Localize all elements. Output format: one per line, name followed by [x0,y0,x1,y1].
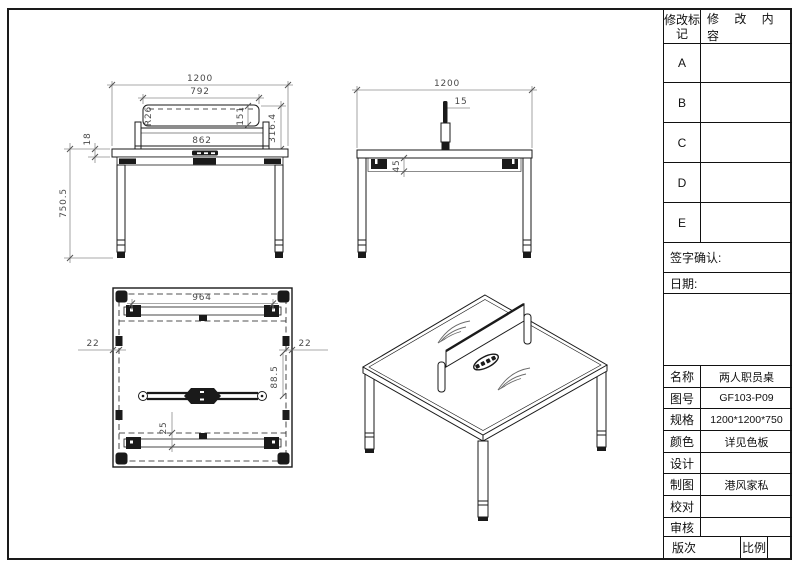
revision-content-e [701,203,792,242]
plan-leg-bl [116,453,128,465]
side-apron [368,158,521,172]
dim-front-screen-width: 792 [138,87,264,104]
revision-mark-e: E [664,203,701,242]
side-leg-left [358,158,366,258]
color-value: 详见色板 [701,431,792,452]
revision-mark-a: A [664,44,701,82]
revision-row-d: D [664,163,792,203]
svg-text:25: 25 [159,421,169,434]
revision-row-a: A [664,44,792,83]
iso-leg-front [478,441,488,521]
field-row-drawing-no: 图号 GF103-P09 [664,388,792,409]
dim-front-top-thickness: 18 [83,132,110,163]
notes-area [664,294,792,366]
drafting-label: 制图 [664,474,701,495]
svg-text:15: 15 [454,97,467,107]
svg-text:964: 964 [192,293,212,303]
color-label: 颜色 [664,431,701,452]
revision-content-b [701,83,792,122]
date-label: 日期: [670,275,697,292]
revision-mark-header: 修改标记 [664,10,701,43]
revision-content-header: 修 改 内 容 [701,10,792,43]
version-scale-row: 版次 比例 [664,537,792,558]
isometric-view [363,295,607,521]
revision-mark-b: B [664,83,701,122]
scale-value [768,537,792,558]
title-block: 修改标记 修 改 内 容 A B C D E 签字确认: 日期: [663,10,792,558]
svg-text:792: 792 [190,87,210,97]
field-row-name: 名称 两人职员桌 [664,366,792,388]
name-label: 名称 [664,366,701,387]
revision-content-a [701,44,792,82]
revision-row-e: E [664,203,792,243]
svg-text:750.5: 750.5 [59,188,69,218]
revision-header-row: 修改标记 修 改 内 容 [664,10,792,44]
side-tabletop [357,150,532,158]
scale-label: 比例 [740,537,768,558]
drawing-no-label: 图号 [664,388,701,408]
front-apron [117,157,283,165]
drawing-no-value: GF103-P09 [701,388,792,408]
svg-text:88.5: 88.5 [270,365,280,388]
revision-content-c [701,123,792,162]
plan-leg-tl [116,291,128,303]
field-row-review: 审核 [664,518,792,537]
dim-front-desk-height: 750.5 [59,143,113,263]
front-tabletop [112,149,288,157]
svg-text:862: 862 [192,136,212,146]
revision-mark-d: D [664,163,701,202]
field-row-spec: 规格 1200*1200*750 [664,409,792,431]
svg-text:45: 45 [392,159,402,172]
side-screen-edge: 15 [441,97,470,150]
iso-leg-left [365,373,374,453]
spec-value: 1200*1200*750 [701,409,792,430]
revision-row-b: B [664,83,792,123]
review-value [701,518,792,536]
front-view: 1200 792 R26 151 [59,74,293,263]
side-view: 1200 15 45 [352,79,537,258]
revision-mark-c: C [664,123,701,162]
field-row-proofread: 校对 [664,496,792,518]
spec-label: 规格 [664,409,701,430]
proofread-value [701,496,792,517]
date-row: 日期: [664,273,792,294]
svg-text:22: 22 [298,339,311,349]
side-leg-right [523,158,531,258]
drafting-value: 港风家私 [701,474,792,495]
design-label: 设计 [664,453,701,473]
svg-text:1200: 1200 [187,74,213,84]
front-leg-left [117,165,125,258]
drawing-area: 1200 792 R26 151 [0,0,663,567]
revision-row-c: C [664,123,792,163]
drawing-sheet: 1200 792 R26 151 [0,0,800,567]
design-value [701,453,792,473]
iso-leg-right [597,371,606,451]
svg-text:1200: 1200 [434,79,460,89]
signature-row: 签字确认: [664,243,792,273]
revision-content-d [701,163,792,202]
field-row-drafting: 制图 港风家私 [664,474,792,496]
proofread-label: 校对 [664,496,701,517]
name-value: 两人职员桌 [701,366,792,387]
svg-text:22: 22 [86,339,99,349]
svg-text:R26: R26 [144,106,154,126]
front-leg-right [275,165,283,258]
field-row-color: 颜色 详见色板 [664,431,792,453]
front-screen-panel: R26 151 [143,103,259,128]
plan-leg-br [278,453,290,465]
signature-label: 签字确认: [670,249,721,266]
field-row-design: 设计 [664,453,792,474]
plan-leg-tr [278,291,290,303]
svg-text:18: 18 [83,132,93,145]
version-label: 版次 [664,537,740,558]
review-label: 审核 [664,518,701,536]
svg-text:151: 151 [236,106,246,126]
plan-view: 964 22 22 88.5 [78,288,328,467]
